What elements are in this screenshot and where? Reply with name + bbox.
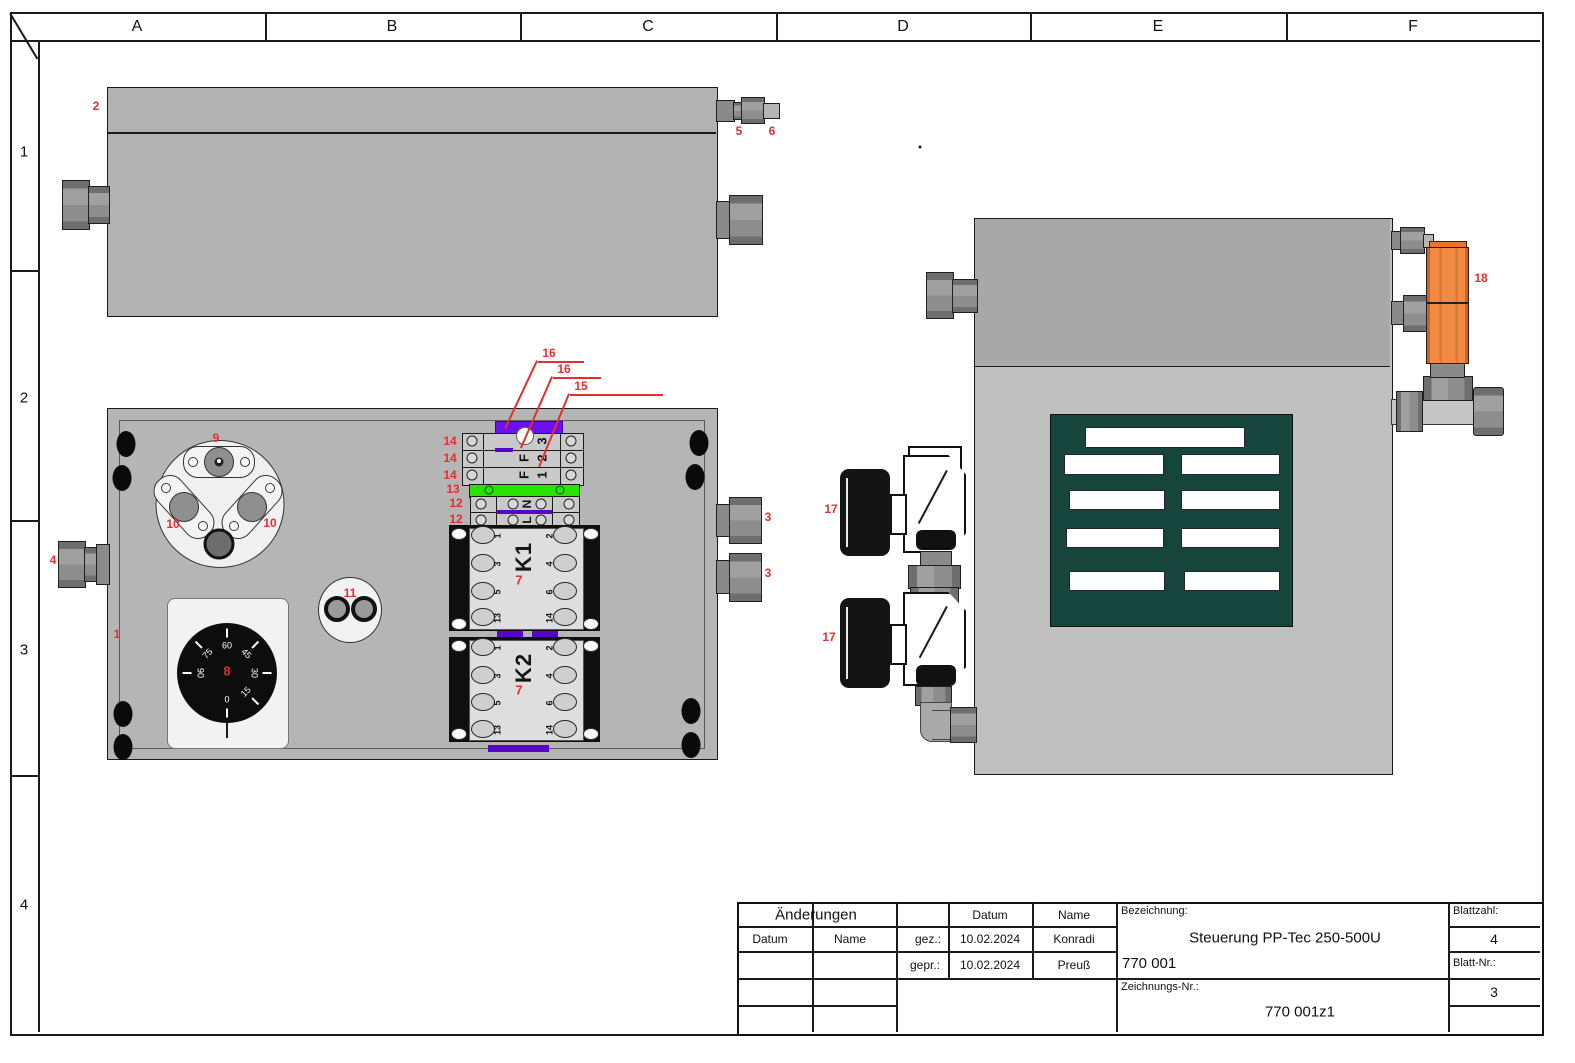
- right-view-top-fitting-nut: [1400, 227, 1425, 254]
- tb-aenderungen: Änderungen: [775, 908, 857, 923]
- vent-slot: [1064, 454, 1164, 475]
- callout-12: 12: [449, 497, 462, 509]
- side-view-top-fitting-tip: [763, 103, 780, 119]
- row-label-3: 3: [20, 643, 28, 658]
- to3-screw: [188, 457, 198, 467]
- pin-label: 3: [494, 561, 503, 566]
- pin-label: 4: [546, 561, 555, 566]
- terminal-screw: [508, 499, 519, 510]
- tb-hline: [737, 951, 1116, 953]
- callout-18: 18: [1474, 272, 1487, 284]
- pin-label: 3: [494, 673, 503, 678]
- callout-7: 7: [515, 574, 522, 587]
- mounting-hole: [690, 430, 709, 456]
- to3-screw: [240, 457, 250, 467]
- terminal-screw: [508, 515, 519, 526]
- terminal-screw: [467, 436, 478, 447]
- tb-vline: [896, 902, 898, 1032]
- to3-can-pin: [217, 459, 221, 463]
- callout-3: 3: [765, 567, 772, 579]
- tb-hline: [1448, 951, 1540, 953]
- tb-name-label: Name: [834, 933, 866, 945]
- tb-blattnr-label: Blatt-Nr.:: [1453, 958, 1496, 969]
- dial-tick: [226, 709, 228, 718]
- callout-9: 9: [213, 432, 220, 444]
- callout-17: 17: [822, 631, 835, 643]
- tb-hline: [1448, 978, 1540, 980]
- panel-left-fitting-collar: [96, 544, 110, 585]
- to3-screw: [265, 483, 275, 493]
- terminal-divider: [483, 433, 484, 484]
- regulator-outlet-black: [916, 530, 956, 550]
- row-label-2: 2: [20, 391, 28, 406]
- tb-bezeichnung-title: Steuerung PP-Tec 250-500U: [1189, 931, 1381, 946]
- callout-8: 8: [223, 665, 230, 678]
- frame-header-line: [10, 40, 1540, 42]
- fuse-indicator-strip: [495, 448, 513, 452]
- pin-label: 5: [494, 700, 503, 705]
- callout-3: 3: [765, 511, 772, 523]
- tb-gez-name: Konradi: [1053, 933, 1094, 945]
- to3-screw: [198, 521, 208, 531]
- relay-pin: [553, 693, 577, 711]
- panel-left-fitting-nut: [58, 541, 86, 588]
- tb-vline: [948, 902, 950, 978]
- callout-10: 10: [263, 517, 276, 529]
- callout-11: 11: [344, 587, 357, 599]
- vent-slot: [1069, 571, 1165, 591]
- side-view-lid-line: [107, 132, 716, 134]
- frame-col-divider: [1030, 12, 1032, 40]
- relay-pin: [553, 526, 577, 544]
- tb-vline: [1448, 902, 1450, 1032]
- power-terminal-strip: [497, 510, 552, 514]
- callout-17: 17: [824, 503, 837, 515]
- tb-hline: [737, 926, 1116, 928]
- relay-pin: [471, 582, 495, 600]
- flowmeter-body-lower: [1426, 303, 1469, 364]
- callout-14: 14: [443, 452, 456, 464]
- fuse-number: 1: [536, 471, 549, 478]
- relay-screw: [451, 528, 467, 540]
- tb-zeichnungs-label: Zeichnungs-Nr.:: [1121, 982, 1199, 993]
- dial-number: 30: [250, 668, 259, 678]
- tb-bezeichnung-number: 770 001: [1122, 956, 1176, 971]
- mounting-hole: [114, 701, 133, 727]
- tb-hline: [737, 978, 1116, 980]
- relay-pin: [471, 526, 495, 544]
- relay-screw: [583, 618, 599, 630]
- mounting-hole: [117, 431, 136, 457]
- dial-tick: [183, 672, 192, 674]
- side-view-left-fitting-nut: [62, 180, 90, 230]
- tb-gepr-label: gepr.:: [910, 959, 940, 971]
- col-label-b: B: [387, 19, 398, 35]
- regulator-connector-nut: [908, 565, 961, 589]
- plate-bottom-bushing: [204, 529, 235, 560]
- callout-14: 14: [443, 469, 456, 481]
- side-view-top-fitting-nut: [741, 97, 765, 124]
- col-label-e: E: [1153, 19, 1164, 35]
- dial-number: 0: [224, 696, 229, 705]
- drawing-sheet: A B C D E F 1 2 3 4 2 5 6 9 10 10 1: [0, 0, 1575, 1063]
- dial-number: 60: [222, 642, 232, 651]
- frame-col-divider: [776, 12, 778, 40]
- callout-7: 7: [515, 684, 522, 697]
- pin-label: 1: [494, 645, 503, 650]
- relay-screw: [583, 728, 599, 740]
- relay-screw: [583, 640, 599, 652]
- terminal-screw: [536, 499, 547, 510]
- tb-gez-label: gez.:: [915, 933, 941, 945]
- relay-pin: [471, 638, 495, 656]
- tb-blattnr-value: 3: [1490, 985, 1498, 999]
- relay-bottom-strip: [488, 745, 549, 752]
- earth-terminal-hole: [485, 486, 494, 495]
- terminal-screw: [467, 470, 478, 481]
- callout-5: 5: [736, 125, 743, 137]
- frame-col-divider: [265, 12, 267, 40]
- elbow-side-nut: [950, 707, 977, 743]
- relay-pin: [553, 666, 577, 684]
- relay-pin: [471, 554, 495, 572]
- vent-slot: [1181, 490, 1280, 510]
- pin-label: 6: [546, 589, 555, 594]
- mounting-hole: [686, 464, 705, 490]
- relay-screw: [583, 528, 599, 540]
- callout-16: 16: [557, 363, 570, 375]
- terminal-screw: [536, 515, 547, 526]
- tb-name-header: Name: [1058, 909, 1090, 921]
- fuse-letter: F: [518, 471, 531, 479]
- frame-col-divider: [520, 12, 522, 40]
- terminal-screw: [564, 499, 575, 510]
- relay-pin: [471, 608, 495, 626]
- regulator-knob-highlight: [846, 607, 848, 679]
- col-label-c: C: [642, 19, 654, 35]
- mounting-hole: [682, 732, 701, 758]
- to3-screw: [229, 521, 239, 531]
- vent-slot: [1069, 490, 1165, 510]
- callout-13: 13: [446, 483, 459, 495]
- fuse-number: 3: [536, 437, 549, 444]
- callout-4: 4: [50, 554, 57, 566]
- tb-hline: [737, 1005, 896, 1007]
- tb-hline: [1116, 978, 1448, 980]
- pin-label: 2: [546, 645, 555, 650]
- terminal-screw: [476, 499, 487, 510]
- tb-gez-datum: 10.02.2024: [960, 933, 1020, 945]
- flowmeter-body-upper: [1426, 247, 1469, 303]
- regulator-knob-highlight: [846, 478, 848, 547]
- frame-row-divider: [10, 270, 38, 272]
- col-label-d: D: [897, 19, 909, 35]
- leader-line: [570, 394, 663, 396]
- pin-label: 2: [546, 533, 555, 538]
- row-label-1: 1: [20, 145, 28, 160]
- panel-right-fitting-nut: [729, 497, 762, 544]
- tb-gepr-datum: 10.02.2024: [960, 959, 1020, 971]
- power-letter-n: N: [521, 500, 533, 509]
- relay-pin: [471, 693, 495, 711]
- power-letter-l: L: [521, 516, 533, 523]
- side-view-housing: [107, 87, 718, 317]
- tb-hline: [1448, 926, 1540, 928]
- callout-16: 16: [542, 347, 555, 359]
- right-view-left-fitting-nut: [926, 272, 954, 319]
- frame-col-divider: [1286, 12, 1288, 40]
- stray-dot: [919, 146, 922, 149]
- side-view-left-fitting-nut: [88, 186, 110, 224]
- tee-pipe-nut: [1396, 391, 1423, 432]
- terminal-divider: [560, 433, 561, 484]
- vent-slot: [1066, 528, 1164, 548]
- terminal-screw: [476, 515, 487, 526]
- pin-label: 4: [546, 673, 555, 678]
- flowmeter-base-nut: [1423, 376, 1473, 401]
- dial-tick: [263, 672, 272, 674]
- callout-1: 1: [114, 628, 121, 640]
- callout-10: 10: [166, 518, 179, 530]
- regulator-stem: [890, 624, 907, 665]
- tb-vline: [1116, 902, 1118, 1032]
- fuse-letter: F: [518, 454, 531, 462]
- mounting-hole: [114, 734, 133, 760]
- dial-tick: [226, 629, 228, 638]
- side-view-right-fitting-nut: [729, 195, 763, 245]
- tb-datum-header: Datum: [972, 909, 1007, 921]
- callout-2: 2: [93, 100, 100, 112]
- tee-pipe-end-nut: [1473, 387, 1504, 436]
- dial-number: 90: [196, 668, 205, 678]
- right-view-left-fitting-ring: [952, 279, 978, 313]
- row-label-4: 4: [20, 898, 28, 913]
- callout-6: 6: [769, 125, 776, 137]
- mounting-hole: [113, 465, 132, 491]
- terminal-screw: [566, 436, 577, 447]
- relay-k2-label: K2: [513, 653, 535, 683]
- tb-blattzahl-label: Blattzahl:: [1453, 906, 1498, 917]
- relay-pin: [553, 720, 577, 738]
- vent-slot: [1181, 454, 1280, 475]
- relay-screw: [451, 618, 467, 630]
- relay-pin: [553, 554, 577, 572]
- relay-k1-label: K1: [513, 542, 535, 572]
- pin-label: 14: [546, 613, 555, 623]
- right-view-lid: [975, 219, 1390, 367]
- tb-blattzahl-value: 4: [1490, 932, 1498, 946]
- pin-label: 13: [494, 613, 503, 623]
- relay-pin: [553, 638, 577, 656]
- terminal-screw: [566, 453, 577, 464]
- vent-slot: [1085, 427, 1245, 448]
- tb-vline: [1032, 902, 1034, 978]
- relay-screw: [451, 728, 467, 740]
- dial-pointer-mark: [226, 722, 228, 738]
- vent-slot: [1181, 528, 1280, 548]
- terminal-screw: [467, 453, 478, 464]
- tb-bezeichnung-label: Bezeichnung:: [1121, 906, 1188, 917]
- relay-screw: [451, 640, 467, 652]
- vent-slot: [1184, 571, 1280, 591]
- col-label-f: F: [1408, 19, 1418, 35]
- pin-label: 1: [494, 533, 503, 538]
- tb-zeichnungs-number: 770 001z1: [1265, 1005, 1335, 1020]
- callout-14: 14: [443, 435, 456, 447]
- pin-label: 5: [494, 589, 503, 594]
- relay-pin: [471, 666, 495, 684]
- tb-hline: [1448, 1005, 1540, 1007]
- regulator-stem: [890, 494, 907, 535]
- pin-label: 14: [546, 725, 555, 735]
- callout-12: 12: [449, 513, 462, 525]
- to3-screw: [161, 483, 171, 493]
- terminal-divider: [552, 496, 553, 528]
- mounting-hole: [682, 698, 701, 724]
- earth-terminal-hole: [556, 486, 565, 495]
- frame-row-divider: [10, 775, 38, 777]
- panel-right-fitting-nut: [729, 553, 762, 602]
- frame-row-divider: [10, 520, 38, 522]
- regulator-outlet-black: [916, 665, 956, 686]
- frame-leftband-line: [38, 40, 40, 1032]
- relay-pin: [553, 608, 577, 626]
- col-label-a: A: [132, 19, 143, 35]
- callout-15: 15: [574, 380, 587, 392]
- terminal-screw: [564, 515, 575, 526]
- tb-datum-label: Datum: [752, 933, 787, 945]
- pin-label: 6: [546, 700, 555, 705]
- terminal-screw: [566, 470, 577, 481]
- flowmeter-base-collar: [1430, 362, 1465, 378]
- relay-pin: [471, 720, 495, 738]
- relay-pin: [553, 582, 577, 600]
- tb-gepr-name: Preuß: [1058, 959, 1091, 971]
- pin-label: 13: [494, 725, 503, 735]
